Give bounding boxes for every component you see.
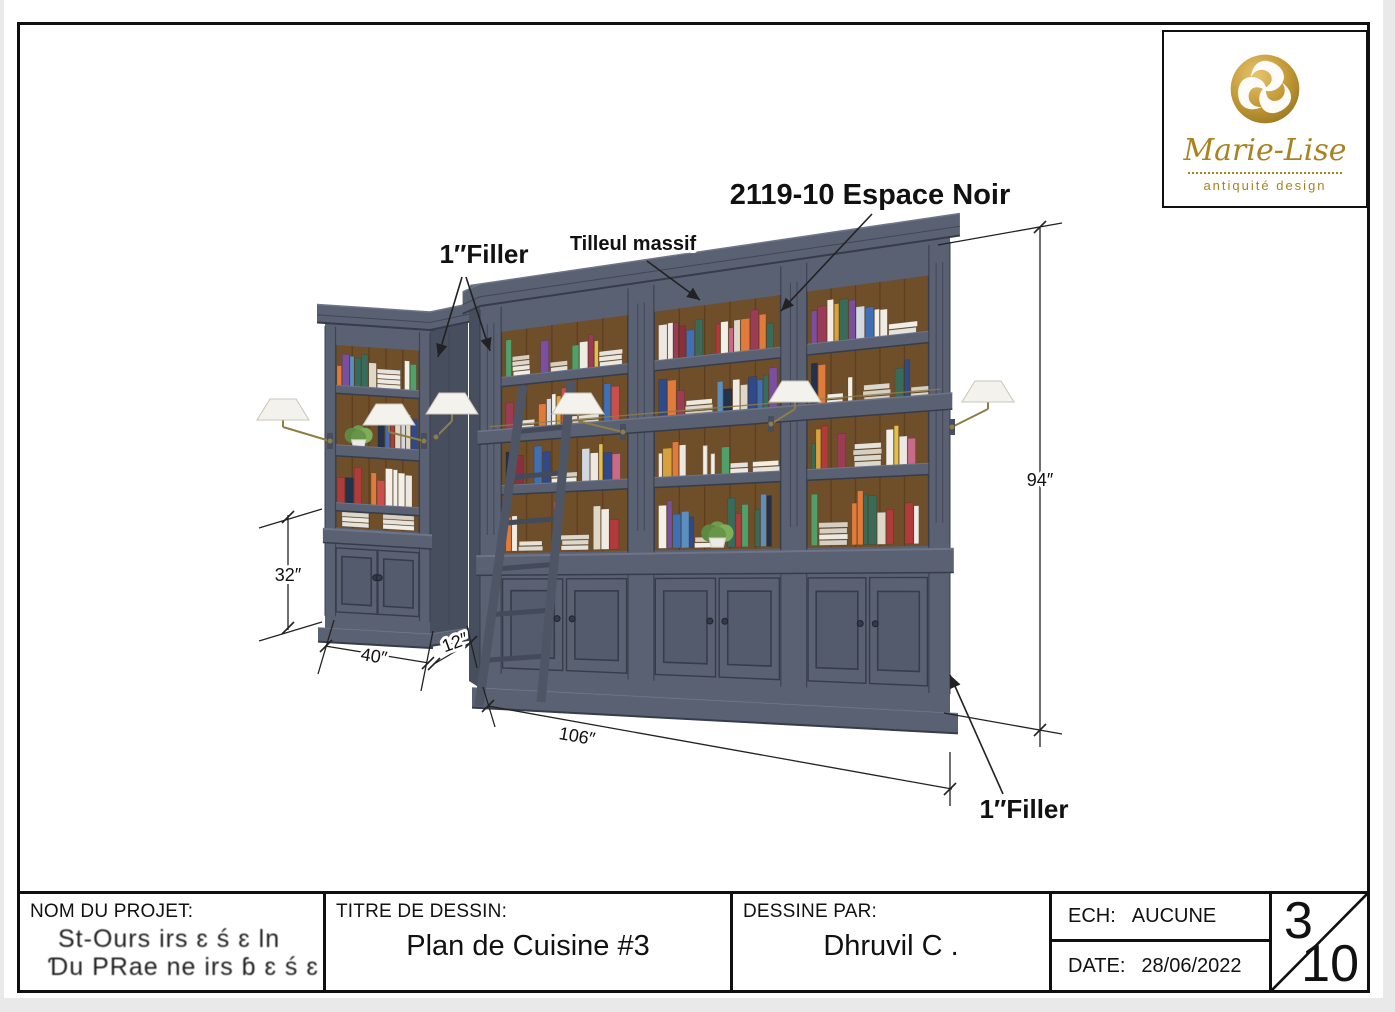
dimension-total-height: 94″ bbox=[1027, 470, 1054, 490]
sheet-count: 10 bbox=[1301, 937, 1359, 992]
filler-annotation-bottom: 1″Filler bbox=[979, 794, 1068, 824]
small-bookcase bbox=[317, 303, 475, 649]
filler-annotation-top: 1″Filler bbox=[439, 239, 528, 269]
sheet-number-cell: 3 10 bbox=[1269, 894, 1367, 990]
project-name-cell: NOM DU PROJET: St-Ours irs ɛ ś ɛ ln Ɗu P… bbox=[20, 894, 323, 990]
author-cell: DESSINE PAR: Dhruvil C . bbox=[730, 894, 1049, 990]
logo-brand-name: Marie-Lise bbox=[1183, 136, 1346, 166]
drawing-title-cell: TITRE DE DESSIN: Plan de Cuisine #3 bbox=[323, 894, 730, 990]
product-code-annotation: 2119-10 Espace Noir bbox=[730, 179, 1011, 211]
scale-label: ECH: bbox=[1068, 905, 1116, 928]
logo-divider bbox=[1188, 172, 1342, 174]
logo-tagline: antiquité design bbox=[1203, 178, 1326, 193]
dimension-small-width: 40″ bbox=[359, 644, 389, 668]
title-block: NOM DU PROJET: St-Ours irs ɛ ś ɛ ln Ɗu P… bbox=[17, 891, 1370, 993]
logo-emblem bbox=[1221, 45, 1309, 133]
author-label: DESSINE PAR: bbox=[733, 894, 1049, 923]
project-name-line2: Ɗu PRae ne irs ɓ ɛ ś ɛ bbox=[20, 953, 323, 981]
date-label: DATE: bbox=[1068, 955, 1125, 978]
date-row: DATE: 28/06/2022 bbox=[1052, 942, 1269, 990]
project-name-line1: St-Ours irs ɛ ś ɛ ln bbox=[20, 925, 323, 953]
dimension-large-width: 106″ bbox=[557, 723, 597, 749]
date-value: 28/06/2022 bbox=[1141, 955, 1241, 978]
drawing-title-label: TITRE DE DESSIN: bbox=[326, 894, 730, 923]
dimension-base-height: 32″ bbox=[275, 565, 302, 585]
scale-date-cell: ECH: AUCUNE DATE: 28/06/2022 bbox=[1049, 894, 1269, 990]
company-logo: Marie-Lise antiquité design bbox=[1162, 30, 1368, 208]
material-annotation: Tilleul massif bbox=[570, 233, 697, 255]
drawing-title: Plan de Cuisine #3 bbox=[326, 930, 730, 963]
project-label: NOM DU PROJET: bbox=[20, 894, 323, 923]
author-name: Dhruvil C . bbox=[733, 930, 1049, 963]
scale-row: ECH: AUCUNE bbox=[1052, 894, 1269, 942]
scale-value: AUCUNE bbox=[1132, 905, 1216, 928]
